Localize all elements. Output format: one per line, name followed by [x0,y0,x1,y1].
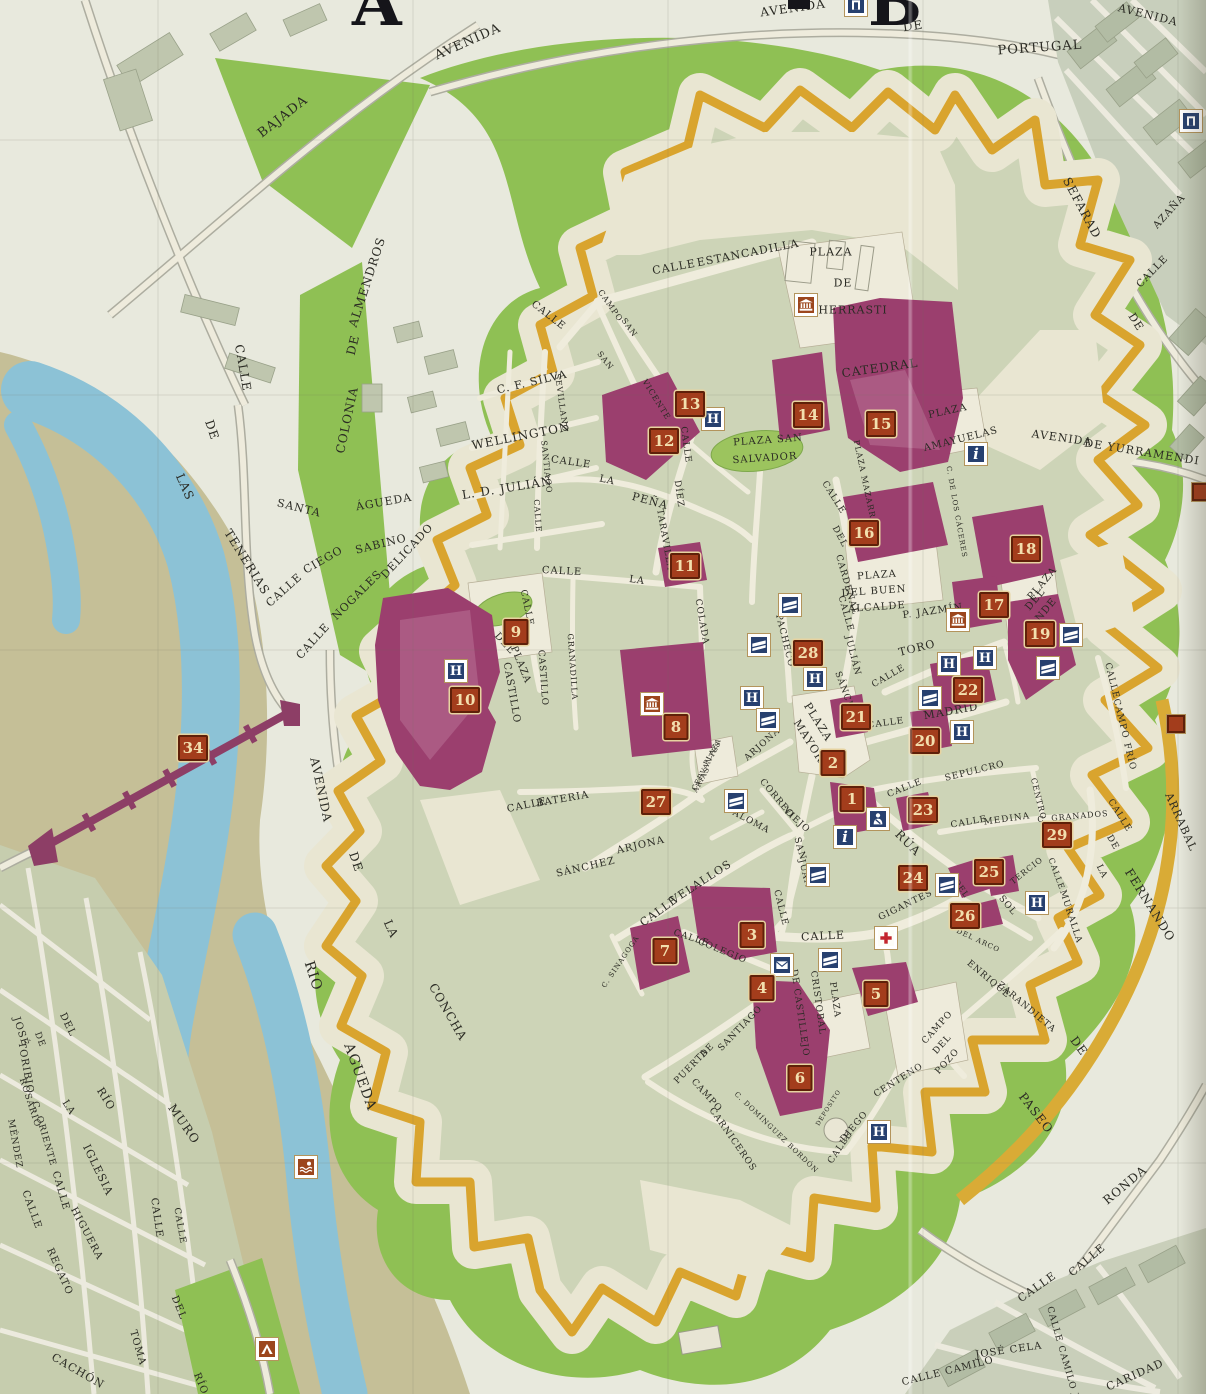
hotel-icon[interactable]: H [702,408,724,430]
pharmacy-cross-icon[interactable] [875,927,897,949]
monument-building-icon[interactable] [845,0,867,16]
poi-marker-27[interactable]: 27 [641,789,671,815]
info-glyph: i [842,830,848,845]
guesthouse-bed-icon[interactable] [748,634,770,656]
map-title-fragment-a: A [352,0,402,41]
poi-marker-4[interactable]: 4 [750,975,775,1001]
poi-marker-8[interactable]: 8 [664,714,689,740]
hotel-glyph: H [746,692,758,705]
hotel-glyph: H [873,1126,885,1139]
cropped-marker-icon[interactable] [1167,715,1185,733]
poi-marker-17[interactable]: 17 [979,592,1009,618]
hotel-glyph: H [809,673,821,686]
poi-marker-11[interactable]: 11 [670,553,700,579]
poi-marker-13[interactable]: 13 [675,391,705,417]
guesthouse-bed-icon[interactable] [936,874,958,896]
poi-marker-3[interactable]: 3 [740,922,765,948]
campsite-icon[interactable] [256,1338,278,1360]
hotel-icon[interactable]: H [804,668,826,690]
guesthouse-bed-icon[interactable] [725,790,747,812]
guesthouse-bed-icon[interactable] [919,687,941,709]
city-tourist-map: BAJADAAVENIDAAVENIDADEPORTUGALAVENIDASEF… [0,0,1206,1394]
poi-marker-2[interactable]: 2 [821,750,846,776]
poi-marker-20[interactable]: 20 [910,728,940,754]
museum-icon[interactable] [641,693,663,715]
poi-marker-19[interactable]: 19 [1025,621,1055,647]
museum-icon[interactable] [795,294,817,316]
poi-marker-18[interactable]: 18 [1011,536,1041,562]
poi-marker-24[interactable]: 24 [898,865,928,891]
map-title-fragment-partial [788,0,810,9]
poi-marker-7[interactable]: 7 [653,938,678,964]
hotel-icon[interactable]: H [868,1121,890,1143]
guesthouse-bed-icon[interactable] [1037,657,1059,679]
poi-marker-14[interactable]: 14 [793,402,823,428]
poi-marker-28[interactable]: 28 [793,640,823,666]
poi-marker-6[interactable]: 6 [788,1065,813,1091]
guesthouse-bed-icon[interactable] [757,709,779,731]
map-title-fragment-b: B [868,0,922,41]
info-icon[interactable]: i [965,443,987,465]
hotel-icon[interactable]: H [741,687,763,709]
poi-marker-15[interactable]: 15 [866,411,896,437]
hotel-glyph: H [956,726,968,739]
poi-marker-9[interactable]: 9 [504,619,529,645]
hotel-glyph: H [707,413,719,426]
hotel-glyph: H [450,665,462,678]
guesthouse-bed-icon[interactable] [807,864,829,886]
poi-marker-12[interactable]: 12 [649,428,679,454]
monument-building-icon[interactable] [1180,110,1202,132]
hotel-icon[interactable]: H [1026,892,1048,914]
poi-marker-16[interactable]: 16 [849,520,879,546]
hotel-icon[interactable]: H [974,647,996,669]
map-base-art [0,0,1206,1394]
cropped-marker-icon[interactable] [1192,483,1206,501]
poi-marker-25[interactable]: 25 [974,859,1004,885]
hotel-icon[interactable]: H [938,653,960,675]
poi-marker-22[interactable]: 22 [953,677,983,703]
post-office-icon[interactable] [771,954,793,976]
guesthouse-bed-icon[interactable] [819,949,841,971]
hotel-icon[interactable]: H [951,721,973,743]
hotel-glyph: H [943,658,955,671]
poi-marker-5[interactable]: 5 [864,981,889,1007]
poi-marker-26[interactable]: 26 [950,903,980,929]
hotel-glyph: H [979,652,991,665]
river-beach-icon[interactable] [295,1156,317,1178]
info-icon[interactable]: i [834,826,856,848]
poi-marker-34[interactable]: 34 [178,735,208,761]
poi-marker-10[interactable]: 10 [450,687,480,713]
guesthouse-bed-icon[interactable] [1060,624,1082,646]
hotel-glyph: H [1031,897,1043,910]
poi-marker-21[interactable]: 21 [841,704,871,730]
guesthouse-bed-icon[interactable] [779,594,801,616]
museum-icon[interactable] [947,609,969,631]
hotel-icon[interactable]: H [445,660,467,682]
poi-marker-1[interactable]: 1 [840,786,865,812]
info-glyph: i [973,447,979,462]
poi-marker-29[interactable]: 29 [1042,822,1072,848]
green-wedge-nw [215,58,430,248]
police-icon[interactable] [867,808,889,830]
poi-marker-23[interactable]: 23 [908,797,938,823]
